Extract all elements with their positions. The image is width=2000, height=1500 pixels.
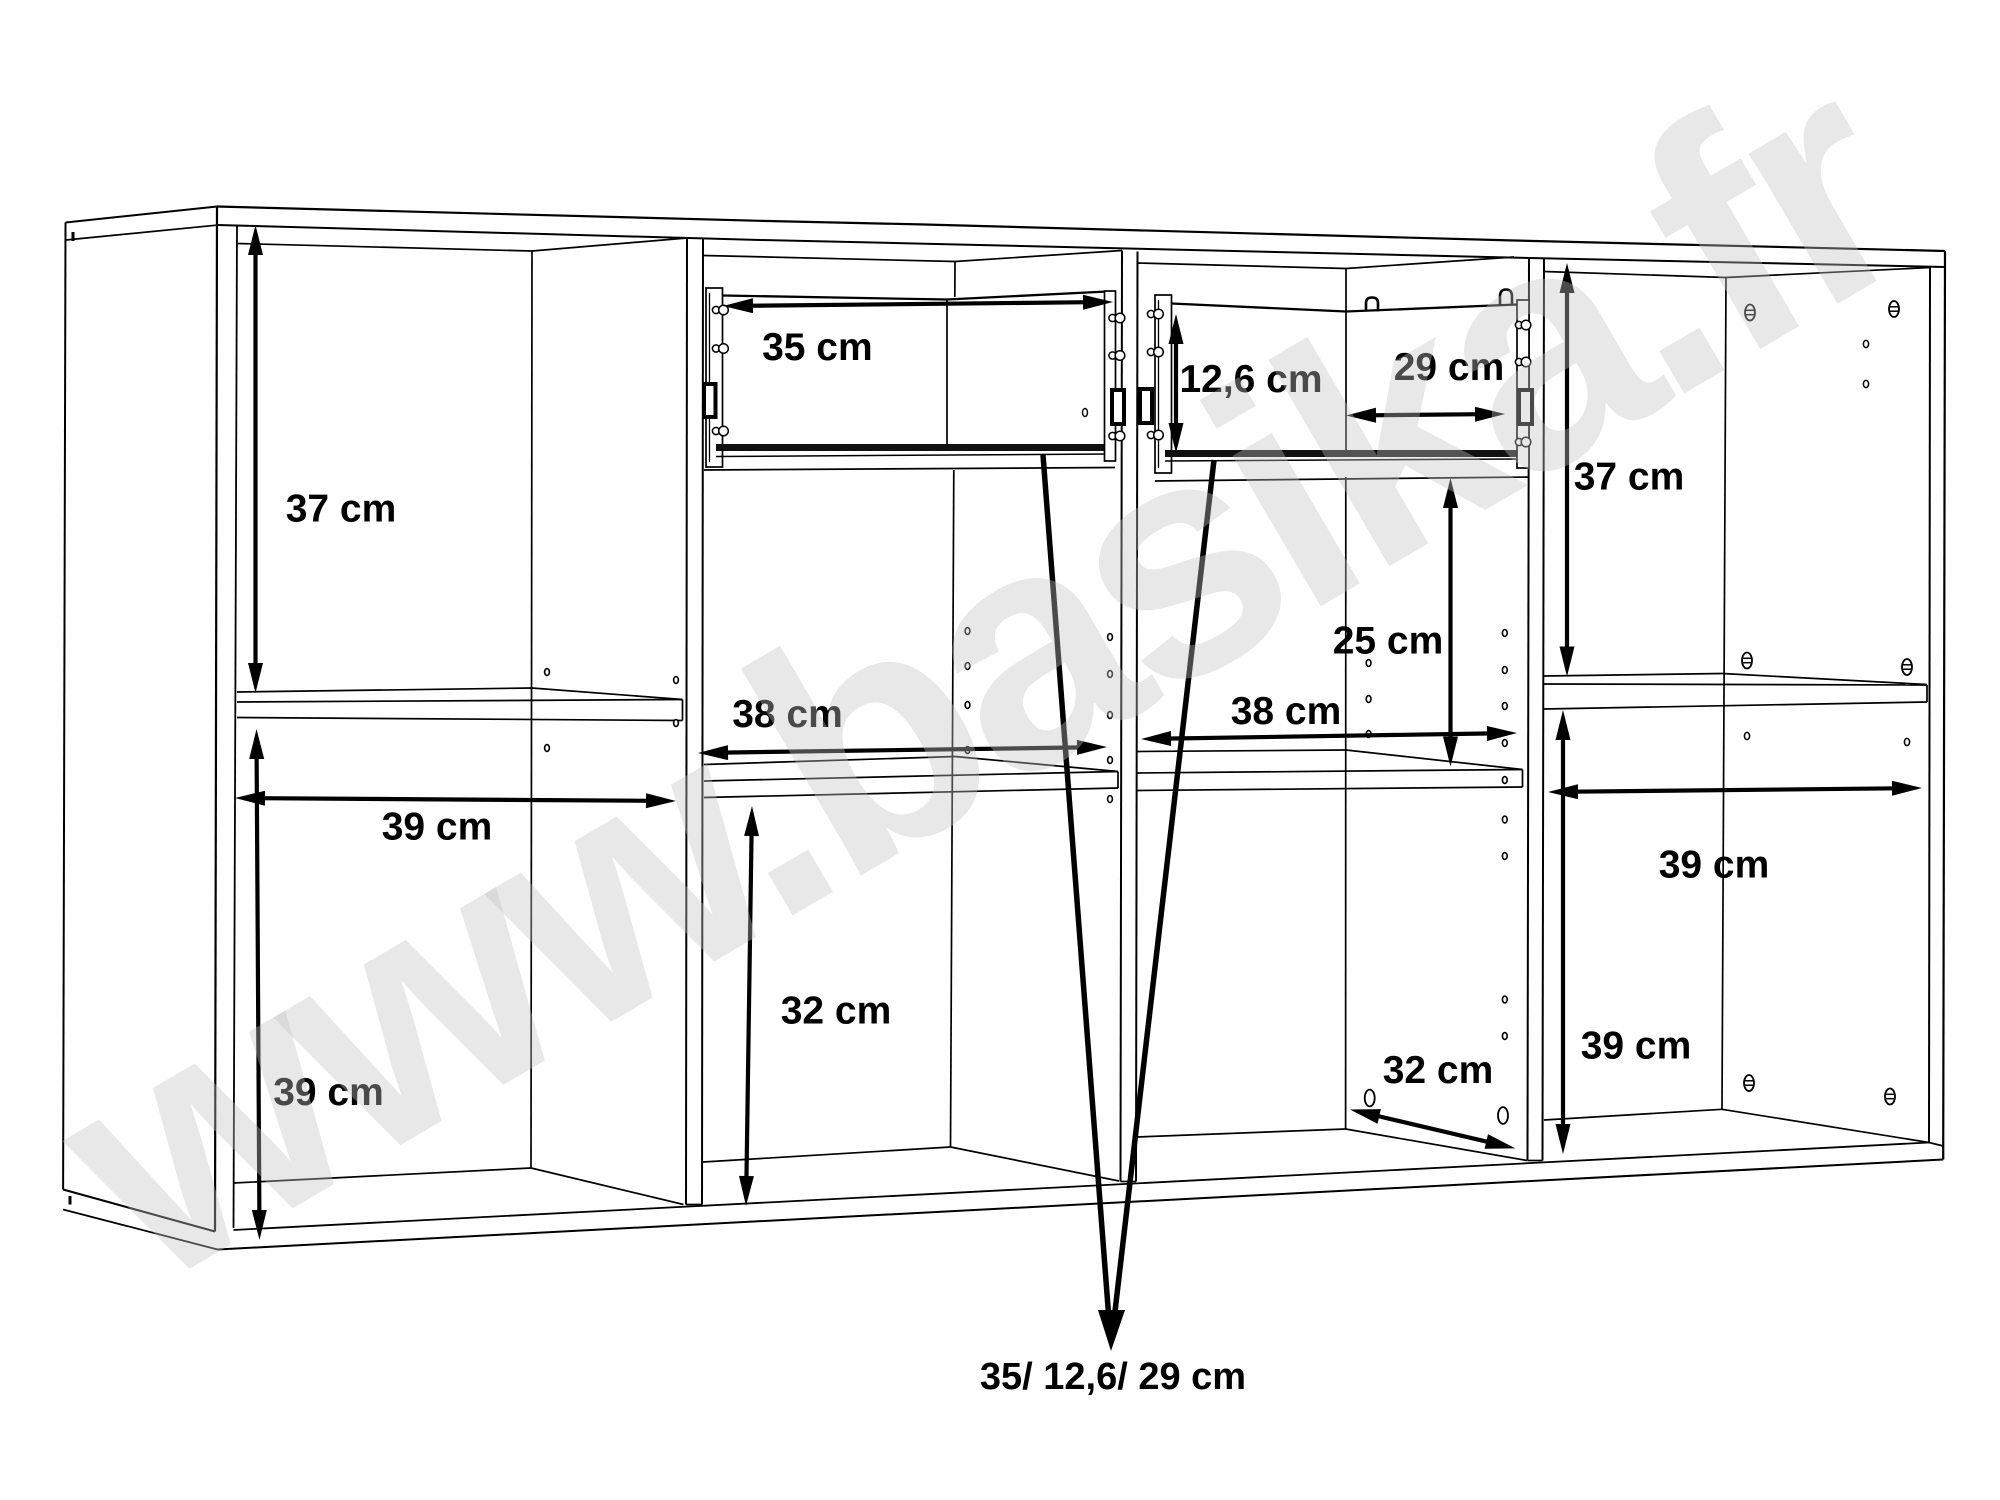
svg-text:32 cm: 32 cm <box>1383 1049 1494 1092</box>
svg-text:39 cm: 39 cm <box>1581 1025 1692 1068</box>
svg-text:35 cm: 35 cm <box>762 326 873 369</box>
svg-text:35/ 12,6/ 29 cm: 35/ 12,6/ 29 cm <box>980 1356 1246 1398</box>
svg-text:32 cm: 32 cm <box>781 990 892 1033</box>
svg-text:37 cm: 37 cm <box>286 488 397 531</box>
svg-text:39 cm: 39 cm <box>1659 844 1770 887</box>
